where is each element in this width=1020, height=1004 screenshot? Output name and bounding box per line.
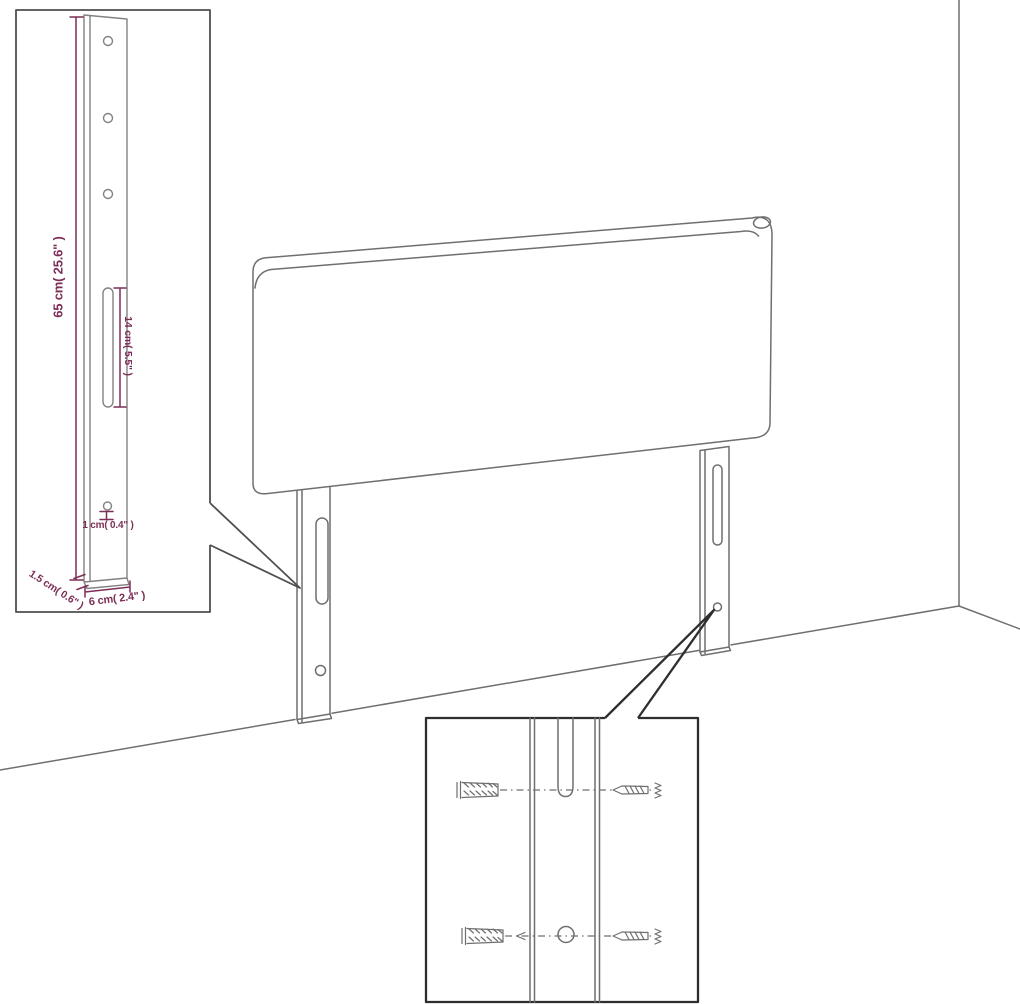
floor-line-right <box>959 606 1020 629</box>
hardware-detail-inset <box>426 610 714 1002</box>
dim-label-slot: 14 cm( 5.5" ) <box>122 316 134 376</box>
detail-background <box>426 718 698 1002</box>
dim-label-height: 65 cm( 25.6" ) <box>50 236 65 317</box>
dim-label-hole: 1 cm( 0.4" ) <box>82 520 133 531</box>
headboard-outline <box>253 217 772 494</box>
headboard-left-leg <box>297 456 332 724</box>
diagram-canvas: 65 cm( 25.6" ) 14 cm( 5.5" ) 1 cm( 0.4" … <box>0 0 1020 1004</box>
assembly-diagram: 65 cm( 25.6" ) 14 cm( 5.5" ) 1 cm( 0.4" … <box>0 0 1020 1004</box>
headboard-panel <box>253 216 772 494</box>
